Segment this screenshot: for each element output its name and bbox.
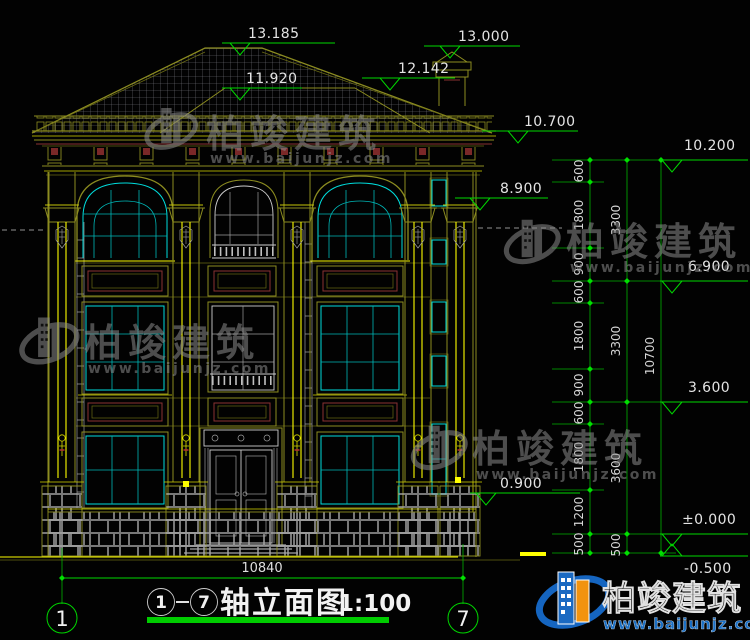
watermark-brand: 柏竣建筑 xyxy=(206,112,382,156)
chain-labels-inner: 600 1800 900 600 1800 900 600 1800 1200 … xyxy=(572,160,586,556)
watermark-url: www.baijunjz.com xyxy=(210,151,393,167)
grip-mark xyxy=(183,481,189,487)
bay-right-arch-window xyxy=(310,176,410,508)
level-zero: ±0.000 xyxy=(682,512,736,528)
drawing-title: 轴立面图 xyxy=(220,586,348,621)
watermark-brand: 柏竣建筑 xyxy=(84,321,260,365)
level-floor3-band: 8.900 xyxy=(500,181,542,197)
footer-logo: 柏竣建筑 www.baijunjz.com xyxy=(533,570,750,634)
title-axis-start: 1 xyxy=(155,593,167,613)
dim: 600 xyxy=(572,402,586,425)
dim-total-height: 10700 xyxy=(643,337,657,375)
railing-3f xyxy=(212,245,276,258)
axis-bubble-1: 1 xyxy=(55,607,68,631)
drawing-scale: 1:100 xyxy=(338,591,411,617)
dim: 1200 xyxy=(572,497,586,528)
watermark-url: www.baijunjz.com xyxy=(570,260,750,276)
dim: 600 xyxy=(572,160,586,183)
dim: 600 xyxy=(572,281,586,304)
title-block: 1 7 轴立面图 1:100 xyxy=(147,586,411,623)
cad-viewport: 13.185 13.000 12.142 11.920 10.700 8.900… xyxy=(0,0,750,640)
level-chimney: 13.000 xyxy=(458,29,509,45)
grip-mark xyxy=(520,552,546,556)
watermark-brand: 柏竣建筑 xyxy=(472,427,648,471)
bay-center xyxy=(208,180,278,426)
elevation-marks-right: 10.200 6.900 3.600 ±0.000 -0.500 xyxy=(660,138,748,577)
watermark-url: www.baijunjz.com xyxy=(88,361,271,377)
dimension-chains-right: 600 1800 900 600 1800 900 600 1800 1200 … xyxy=(552,157,676,556)
watermark-brand: 柏竣建筑 xyxy=(566,220,742,264)
level-parapet: 10.200 xyxy=(684,138,735,154)
level-peak: 13.185 xyxy=(248,26,299,42)
pilaster-5 xyxy=(438,172,482,556)
axis-bubble-7: 7 xyxy=(456,607,469,631)
dim: 500 xyxy=(609,534,623,557)
level-floor2: 3.600 xyxy=(688,380,730,396)
elevation-drawing: 13.185 13.000 12.142 11.920 10.700 8.900… xyxy=(0,0,750,640)
level-ridge-left: 11.920 xyxy=(246,71,297,87)
dim: 500 xyxy=(572,533,586,556)
watermark-url: www.baijunjz.com xyxy=(476,467,659,483)
watermark-left: 柏竣建筑 www.baijunjz.com xyxy=(17,318,271,378)
dim: 3300 xyxy=(609,326,623,357)
company-url: www.baijunjz.com xyxy=(603,615,750,633)
dim-total-width: 10840 xyxy=(241,561,282,576)
watermark-right: 柏竣建筑 www.baijunjz.com xyxy=(501,220,750,276)
level-ground: -0.500 xyxy=(684,561,732,577)
dim: 1800 xyxy=(572,321,586,352)
title-underline xyxy=(147,617,389,623)
downpipe-left xyxy=(77,222,84,508)
level-ridge-right: 12.142 xyxy=(398,61,449,77)
title-axis-end: 7 xyxy=(198,593,210,613)
dim: 900 xyxy=(572,374,586,397)
grip-mark xyxy=(455,477,461,483)
downpipe-center xyxy=(305,222,312,508)
level-eave: 10.700 xyxy=(524,114,575,130)
company-name: 柏竣建筑 xyxy=(602,579,742,619)
